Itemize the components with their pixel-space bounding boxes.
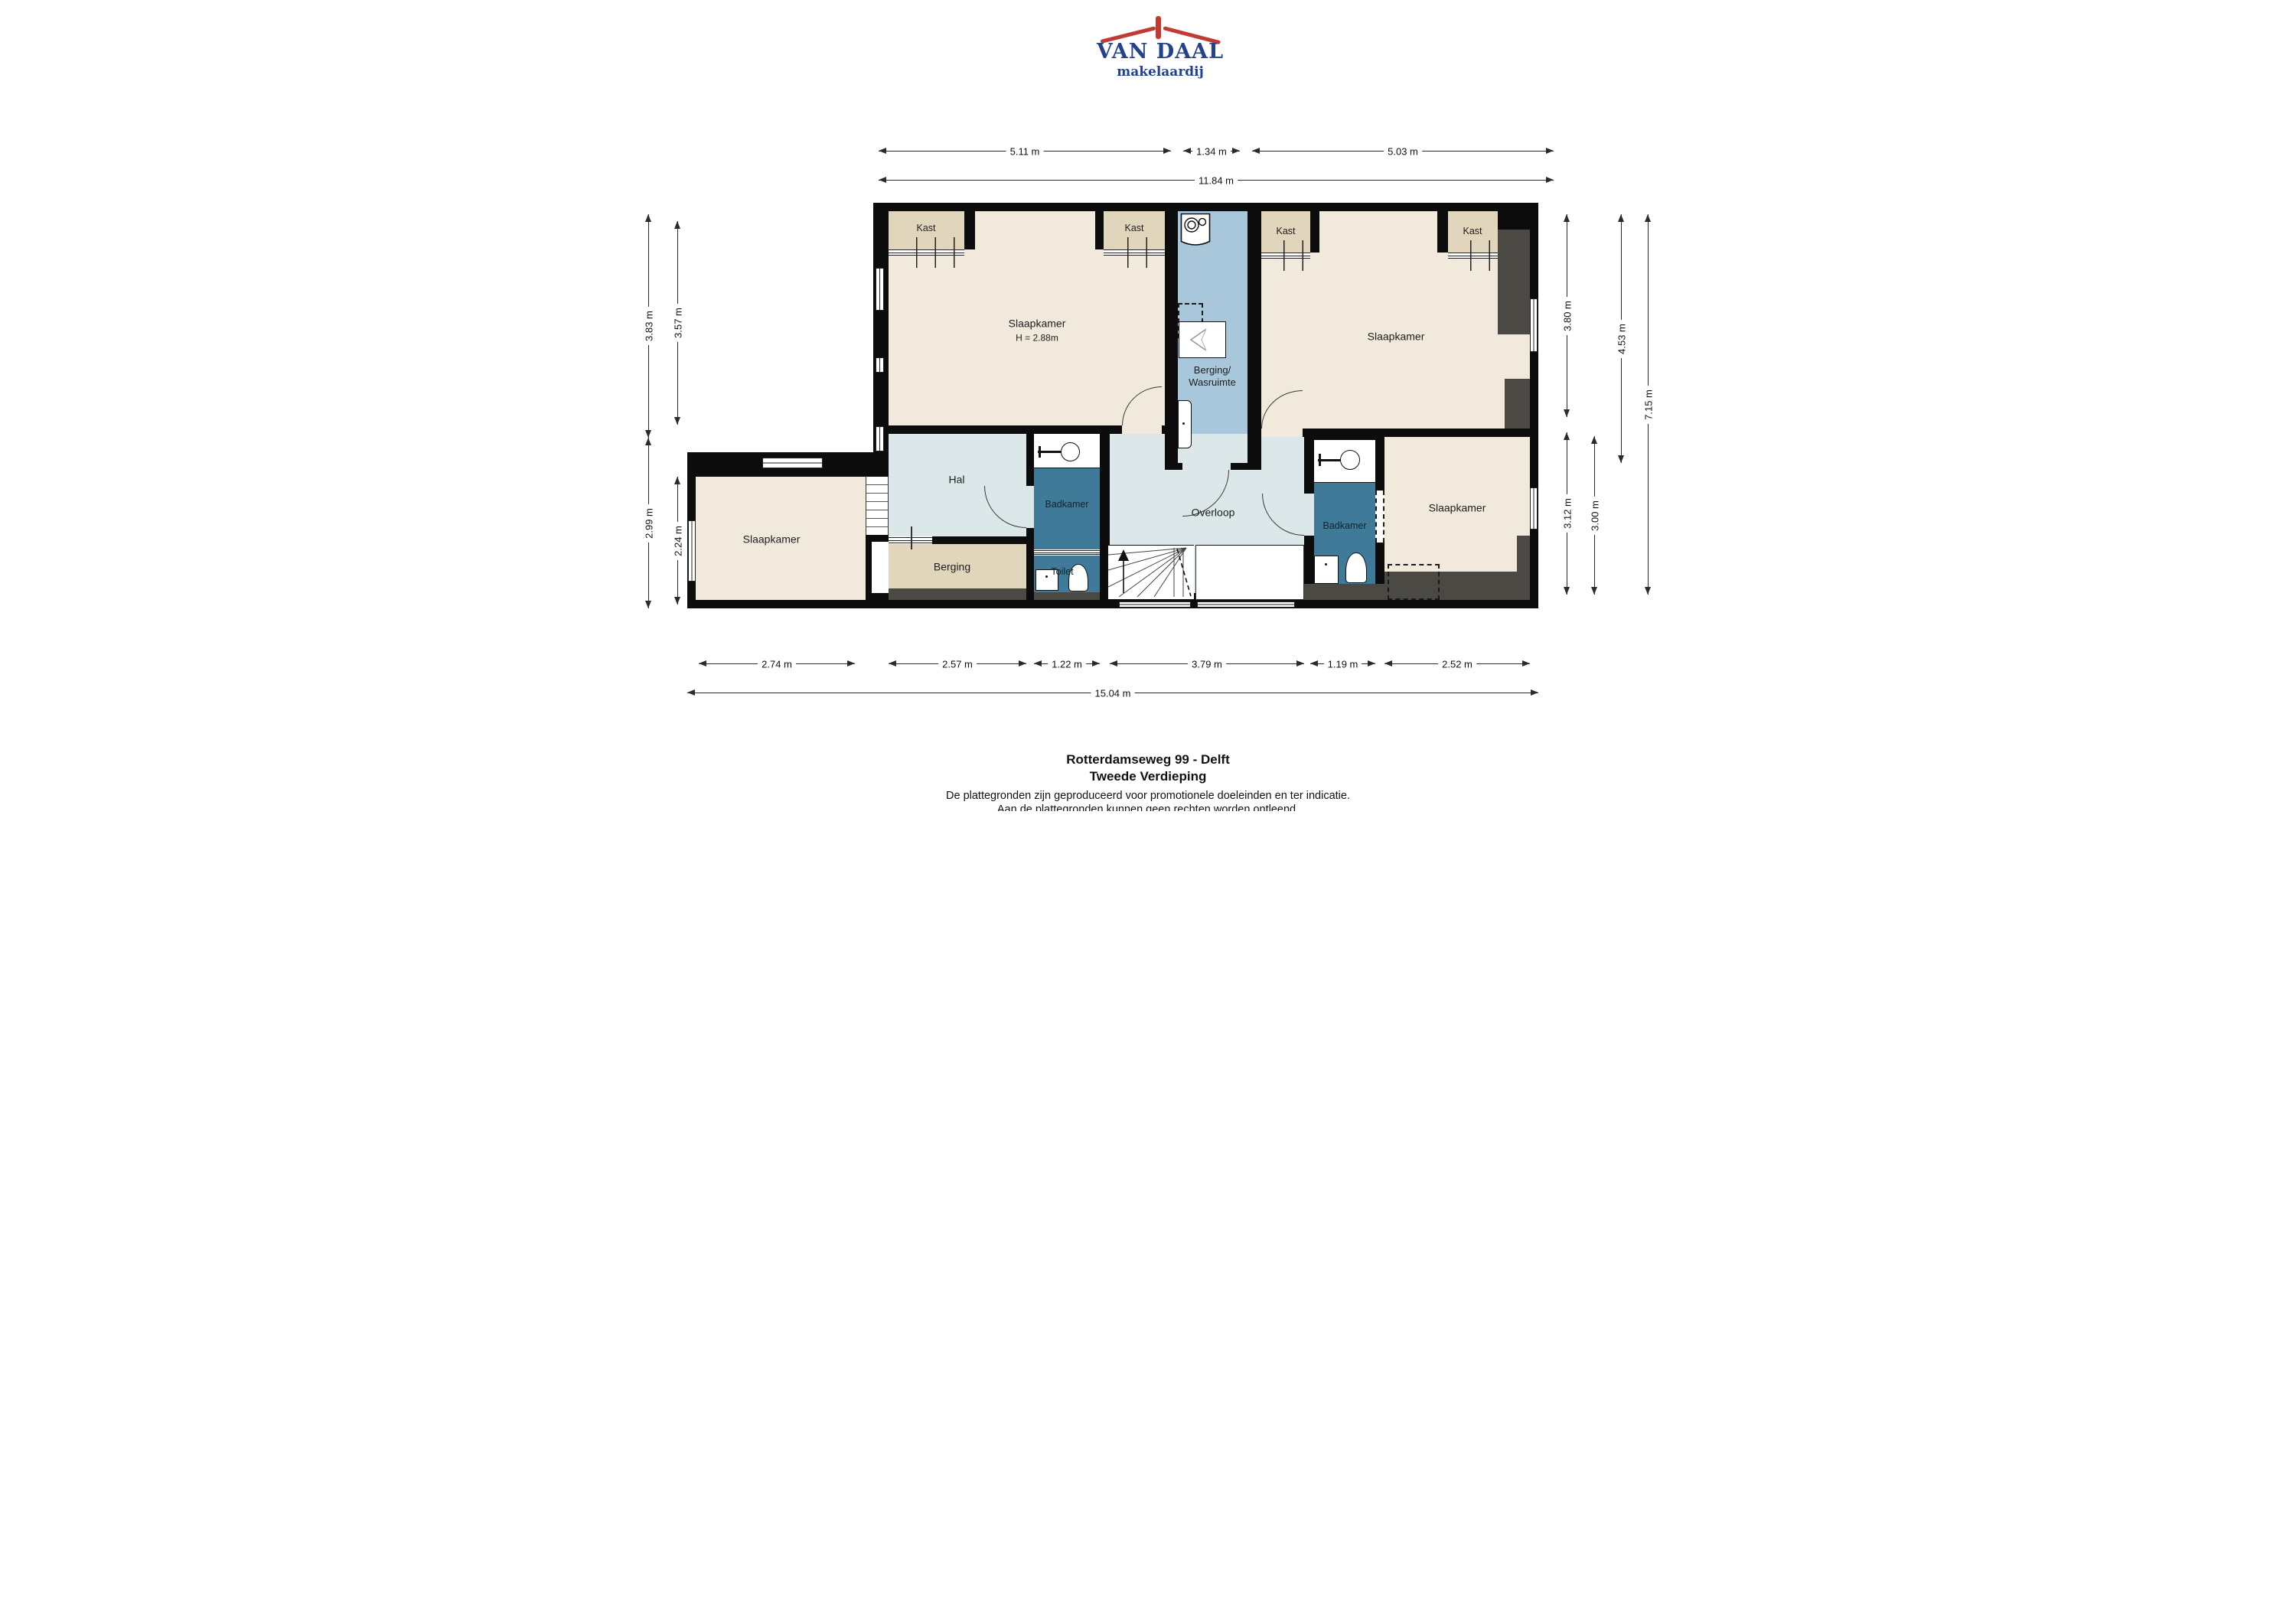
wall-slk2-bottom-b: [1303, 429, 1530, 437]
wall-overloop-badkamer2-b: [1304, 536, 1314, 584]
dim-top-2: 1.34 m: [1183, 151, 1240, 152]
door-gap-badkamer1: [1026, 486, 1034, 528]
dim-right-4: 4.53 m: [1621, 214, 1622, 463]
label-slaapkamer-bottom-right: Slaapkamer: [1429, 501, 1486, 515]
label-slaapkamer-top-left-text: Slaapkamer: [1009, 318, 1066, 330]
badkamer-2-vanity: [1314, 556, 1339, 584]
label-hal: Hal: [948, 473, 964, 487]
kast-2-stub-wall: [1095, 211, 1104, 249]
dim-right-1-label: 3.80 m: [1562, 297, 1574, 335]
kast-1-stub-wall: [964, 211, 975, 249]
label-slaapkamer-bottom-left: Slaapkamer: [743, 533, 801, 546]
dim-bottom-4: 3.79 m: [1110, 663, 1304, 664]
washing-machine-icon: [1180, 213, 1211, 248]
label-badkamer-1: Badkamer: [1045, 499, 1089, 511]
wall-slk2-bottom-a: [1247, 429, 1261, 437]
dim-right-5-label: 7.15 m: [1643, 386, 1655, 424]
dim-top-total: 11.84 m: [879, 180, 1554, 181]
floorplan-page: VAN DAAL makelaardij 5.11 m 1.34 m 5.03 …: [574, 0, 1722, 811]
badkamer-1-sink-icon: [1061, 442, 1080, 461]
wall-cavity-gap: [872, 542, 889, 593]
steps-to-left-bedroom: [866, 477, 889, 535]
logo-name: VAN DAAL: [1097, 40, 1224, 64]
wall-overloop-badkamer2-a: [1304, 429, 1314, 494]
window-bottom-wall-b: [1197, 601, 1295, 608]
dim-right-5: 7.15 m: [1648, 214, 1649, 595]
label-slaapkamer-top-left: Slaapkamer H = 2.88m: [1009, 318, 1066, 344]
door-gap-laundry: [1182, 463, 1231, 470]
wall-slk1-bottom-b: [1162, 425, 1165, 434]
dim-left-4-label: 2.24 m: [673, 522, 684, 560]
dim-bottom-6: 2.52 m: [1384, 663, 1530, 664]
wall-laundry-bottom-a: [1165, 463, 1182, 470]
dim-top-total-label: 11.84 m: [1195, 175, 1238, 187]
dim-top-3: 5.03 m: [1252, 151, 1554, 152]
logo-tagline: makelaardij: [1117, 64, 1204, 80]
footer-disclaimer-1: De plattegronden zijn geproduceerd voor …: [946, 790, 1350, 802]
dim-bottom-1-label: 2.74 m: [758, 659, 796, 670]
dim-right-1: 3.80 m: [1567, 214, 1567, 417]
dim-bottom-5-label: 1.19 m: [1324, 659, 1362, 670]
wall-slk1-bottom-a: [889, 425, 1122, 434]
dim-left-2-label: 3.57 m: [673, 304, 684, 342]
label-berging: Berging: [934, 560, 970, 574]
footer-disclaimer-2: Aan de plattegronden kunnen geen rechten…: [997, 803, 1299, 811]
dim-top-1-label: 5.11 m: [1006, 146, 1044, 158]
dim-bottom-6-label: 2.52 m: [1438, 659, 1476, 670]
dim-left-1-label: 3.83 m: [644, 307, 655, 345]
window-left-wall-upper: [876, 268, 884, 311]
label-kast-4: Kast: [1463, 226, 1482, 238]
label-overloop: Overloop: [1192, 506, 1235, 520]
toilet-sink-drain: [1045, 575, 1048, 578]
label-badkamer-2: Badkamer: [1323, 520, 1367, 533]
dim-right-4-label: 4.53 m: [1616, 320, 1628, 358]
window-right-wall-slk2: [1530, 298, 1538, 352]
dim-top-1: 5.11 m: [879, 151, 1171, 152]
label-kast-1: Kast: [916, 223, 935, 235]
attic-sliver-berging: [889, 588, 1026, 600]
badkamer-2-sink-icon: [1340, 450, 1360, 470]
label-slaapkamer-top-right: Slaapkamer: [1368, 330, 1425, 344]
footer-floor: Tweede Verdieping: [1090, 769, 1207, 784]
window-left-wall-mid: [876, 357, 884, 373]
dim-bottom-1: 2.74 m: [699, 663, 855, 664]
dim-left-2: 3.57 m: [677, 221, 678, 425]
label-berging-wasruimte-line2: Wasruimte: [1189, 376, 1236, 388]
dim-left-4: 2.24 m: [677, 477, 678, 605]
dim-bottom-2-label: 2.57 m: [938, 659, 977, 670]
wall-hal-badkamer1-a: [1026, 434, 1034, 486]
kast-3-stub-wall: [1310, 211, 1319, 253]
laundry-door-leaf: [1178, 400, 1192, 448]
dim-bottom-3-label: 1.22 m: [1048, 659, 1086, 670]
logo-chimney-icon: [1156, 16, 1161, 39]
dim-bottom-2: 2.57 m: [889, 663, 1026, 664]
attic-sliver-toilet: [1034, 592, 1100, 600]
footer-address: Rotterdamseweg 99 - Delft: [1066, 752, 1230, 768]
label-toilet: Toilet: [1051, 566, 1073, 578]
staircase-treads-icon: [1108, 546, 1192, 598]
badkamer-1-faucet-cross: [1039, 446, 1041, 458]
kast-4-stub-wall: [1437, 211, 1448, 253]
label-ceiling-height: H = 2.88m: [1016, 332, 1058, 343]
dim-top-2-label: 1.34 m: [1192, 146, 1231, 158]
badkamer-2-vanity-drain: [1325, 563, 1327, 565]
label-kast-2: Kast: [1124, 223, 1143, 235]
badkamer-1-faucet: [1038, 451, 1064, 453]
dim-left-3-label: 2.99 m: [644, 504, 655, 543]
kast-1-hanger-ticks: [899, 237, 957, 268]
dim-bottom-4-label: 3.79 m: [1188, 659, 1226, 670]
slk3-dashed-opening: [1388, 564, 1440, 600]
label-kast-3: Kast: [1276, 226, 1295, 238]
attic-recess-top-right: [1498, 230, 1530, 334]
dim-left-3: 2.99 m: [648, 438, 649, 608]
door-gap-slk2: [1261, 429, 1303, 437]
window-left-wall-hal: [876, 426, 884, 451]
sliding-door-opening: [1375, 490, 1384, 543]
window-bottom-wall-a: [1119, 601, 1191, 608]
dim-bottom-5: 1.19 m: [1310, 663, 1375, 664]
dim-bottom-3: 1.22 m: [1034, 663, 1100, 664]
wall-laundry-bottom-b: [1231, 463, 1247, 470]
laundry-door-handle: [1182, 422, 1185, 425]
dim-bottom-total: 15.04 m: [687, 693, 1538, 693]
window-left-wing-side: [688, 520, 696, 582]
wall-slk1-laundry: [1165, 211, 1178, 470]
steps-bottom-stub: [866, 535, 889, 542]
wall-hal-badkamer1-b: [1026, 528, 1034, 544]
dim-right-3: 3.00 m: [1594, 436, 1595, 595]
staircase: [1107, 545, 1194, 600]
dim-left-1: 3.83 m: [648, 214, 649, 438]
kast-3-hanger-ticks: [1266, 240, 1306, 271]
dim-top-3-label: 5.03 m: [1384, 146, 1422, 158]
attic-strip-right: [1517, 536, 1530, 572]
label-berging-wasruimte: Berging/ Wasruimte: [1189, 364, 1236, 389]
badkamer-toilet-threshold: [1034, 549, 1100, 556]
stairwell-void: [1195, 545, 1304, 600]
door-gap-slk1: [1122, 425, 1162, 434]
boiler-chevron-icon: [1179, 321, 1226, 358]
badkamer-2-toilet-icon: [1345, 552, 1367, 583]
dim-right-2: 3.12 m: [1567, 432, 1567, 595]
label-berging-wasruimte-line1: Berging/: [1194, 364, 1231, 376]
dim-right-3-label: 3.00 m: [1590, 497, 1601, 535]
wall-hal-berging: [932, 536, 1026, 544]
dim-bottom-total-label: 15.04 m: [1091, 688, 1135, 699]
window-left-wing-top: [762, 458, 823, 468]
left-wing-right-wall: [866, 542, 872, 608]
window-right-wall-slk3: [1530, 487, 1538, 530]
dim-right-2-label: 3.12 m: [1562, 494, 1574, 533]
kast-2-hanger-ticks: [1110, 237, 1160, 268]
badkamer-2-faucet-cross: [1319, 454, 1321, 466]
door-gap-badkamer2: [1304, 494, 1314, 536]
hal-berging-door-leaf: [911, 526, 912, 549]
kast-4-hanger-ticks: [1453, 240, 1493, 271]
